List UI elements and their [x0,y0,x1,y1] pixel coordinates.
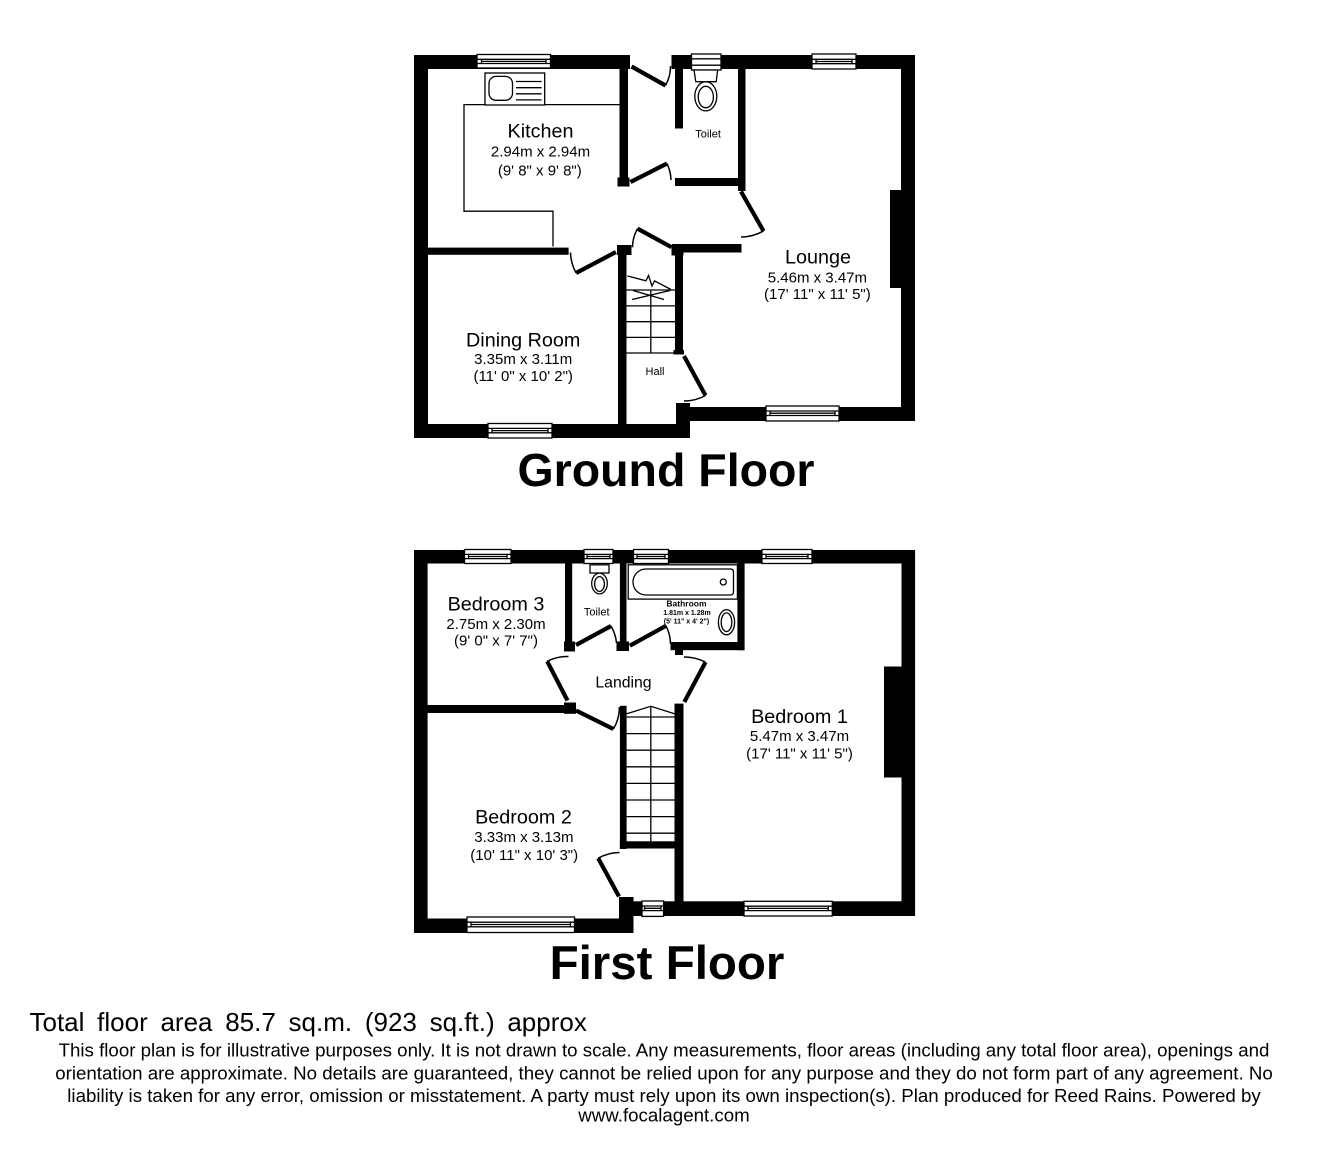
svg-text:(10' 11" x 10' 3"): (10' 11" x 10' 3") [470,847,578,864]
svg-text:Landing: Landing [595,674,651,691]
svg-text:Hall: Hall [646,366,665,378]
svg-text:(17' 11" x 11' 5"): (17' 11" x 11' 5") [764,286,871,303]
svg-text:First Floor: First Floor [550,937,785,990]
svg-text:5.47m x 3.47m: 5.47m x 3.47m [750,728,849,745]
svg-text:5.46m x 3.47m: 5.46m x 3.47m [768,270,867,287]
svg-text:Toilet: Toilet [584,607,610,619]
svg-text:(11' 0" x 10' 2"): (11' 0" x 10' 2") [473,368,572,385]
svg-text:Kitchen: Kitchen [508,120,574,142]
svg-text:3.33m x 3.13m: 3.33m x 3.13m [474,829,573,846]
svg-text:Bathroom: Bathroom [666,598,707,608]
svg-text:Toilet: Toilet [695,129,721,141]
svg-text:Lounge: Lounge [785,247,851,269]
svg-text:(5' 11" x 4' 2"): (5' 11" x 4' 2") [664,618,709,625]
svg-text:2.94m x 2.94m: 2.94m x 2.94m [491,143,590,160]
svg-text:Dining Room: Dining Room [466,330,580,352]
svg-text:Bedroom 2: Bedroom 2 [475,807,572,829]
svg-text:Bedroom 3: Bedroom 3 [448,593,545,615]
svg-text:Total floor area 85.7 sq.m. (9: Total floor area 85.7 sq.m. (923 sq.ft.)… [30,1007,587,1037]
svg-text:(9' 8" x 9' 8"): (9' 8" x 9' 8") [498,163,582,180]
svg-text:Bedroom 1: Bedroom 1 [751,706,848,728]
svg-text:1.81m x 1.28m: 1.81m x 1.28m [663,610,710,617]
svg-text:2.75m x 2.30m: 2.75m x 2.30m [446,616,545,633]
svg-text:Ground Floor: Ground Floor [517,444,814,496]
svg-text:(9' 0" x 7' 7"): (9' 0" x 7' 7") [454,632,538,649]
svg-text:liability is taken for any err: liability is taken for any error, omissi… [67,1085,1261,1106]
svg-text:3.35m x 3.11m: 3.35m x 3.11m [474,351,572,368]
svg-text:orientation are approximate. N: orientation are approximate. No details … [55,1062,1273,1083]
svg-text:www.focalagent.com: www.focalagent.com [577,1105,749,1126]
svg-text:This floor plan is for illustr: This floor plan is for illustrative purp… [59,1040,1270,1061]
svg-text:(17' 11" x 11' 5"): (17' 11" x 11' 5") [746,746,853,763]
